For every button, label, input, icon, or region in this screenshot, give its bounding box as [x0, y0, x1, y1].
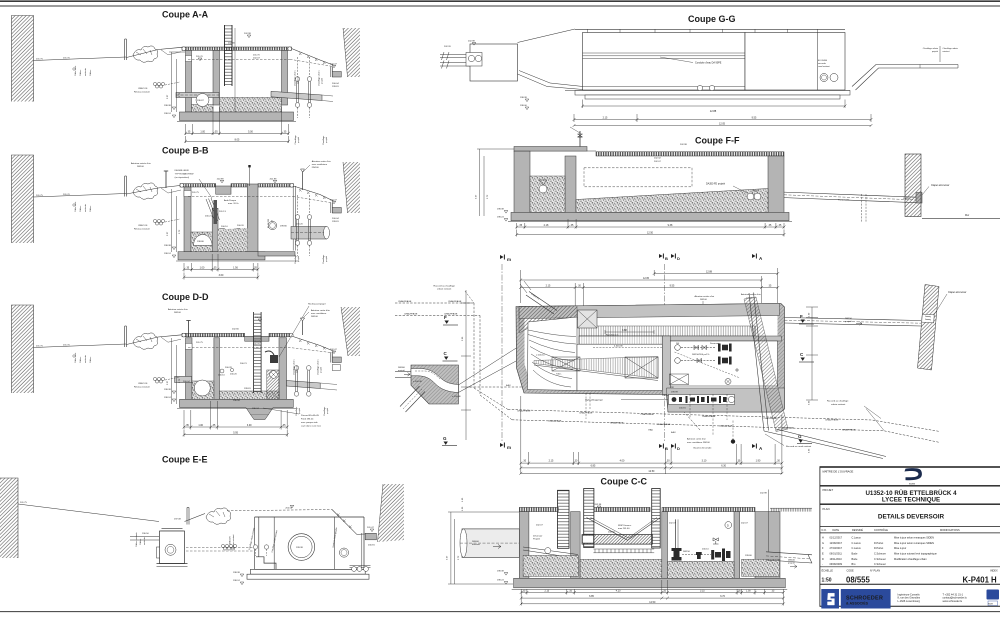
svg-text:201.75: 201.75	[36, 346, 43, 348]
svg-text:CHAUFFAGE: CHAUFFAGE	[448, 300, 462, 303]
svg-text:4.20: 4.20	[616, 589, 621, 592]
svg-text:C.Lanux: C.Lanux	[852, 542, 862, 545]
svg-text:CHAUFFAGE: CHAUFFAGE	[610, 421, 624, 424]
svg-text:CHAUFFAGE: CHAUFFAGE	[702, 415, 716, 418]
svg-text:Conduite d'eau DA 90PE: Conduite d'eau DA 90PE	[695, 62, 722, 65]
svg-text:199.99: 199.99	[671, 392, 678, 394]
svg-text:CRECOS: CRECOS	[138, 225, 148, 227]
svg-text:C.Lanux: C.Lanux	[852, 537, 862, 540]
svg-text:Deversoir: Deversoir	[710, 342, 720, 345]
svg-text:PROJET: PROJET	[823, 488, 834, 492]
svg-text:projeté: projeté	[788, 562, 795, 565]
svg-text:27/03/2017: 27/03/2017	[830, 547, 843, 550]
svg-text:2.18: 2.18	[544, 224, 549, 227]
svg-text:DN300 FD: DN300 FD	[530, 293, 539, 300]
svg-text:Chauffage urbain: Chauffage urbain	[319, 71, 321, 86]
svg-text:200.21: 200.21	[240, 363, 247, 365]
svg-text:Bro: Bro	[852, 563, 857, 566]
svg-text:Chauffage: Chauffage	[323, 254, 325, 264]
svg-text:Mise à jour selon remarques SI: Mise à jour selon remarques SIDEN	[894, 542, 934, 545]
svg-text:35: 35	[213, 424, 216, 427]
svg-text:D: D	[822, 558, 824, 561]
svg-text:35: 35	[254, 266, 257, 269]
svg-text:12.05: 12.05	[643, 277, 650, 280]
svg-text:Fond 196.24: Fond 196.24	[301, 419, 314, 421]
svg-text:CONTRÔLE: CONTRÔLE	[874, 529, 888, 532]
svg-text:197.08: 197.08	[174, 519, 181, 521]
svg-text:3.10: 3.10	[702, 460, 707, 463]
svg-text:12.50: 12.50	[647, 232, 654, 235]
svg-text:1.00: 1.00	[809, 312, 811, 317]
svg-text:projeté: projeté	[321, 77, 324, 84]
svg-text:35: 35	[283, 424, 286, 427]
svg-text:201.75: 201.75	[192, 192, 199, 194]
svg-text:Chauffage urbain: Chauffage urbain	[295, 71, 297, 86]
svg-text:existant: existant	[296, 366, 299, 373]
svg-text:1.00: 1.00	[198, 424, 203, 427]
svg-text:PLAN: PLAN	[823, 507, 830, 511]
svg-text:198.38: 198.38	[164, 105, 171, 107]
svg-text:DN150/200 p=1%: DN150/200 p=1%	[692, 354, 709, 356]
svg-text:200.10: 200.10	[218, 375, 225, 377]
svg-text:avec ventilateur: avec ventilateur	[312, 163, 328, 166]
svg-text:201.75: 201.75	[196, 342, 203, 344]
svg-text:202.98: 202.98	[680, 144, 687, 146]
svg-text:3.37: 3.37	[167, 94, 169, 99]
svg-text:H: H	[822, 537, 824, 540]
svg-text:existant: existant	[943, 50, 950, 53]
svg-text:Pente 1.0%: Pente 1.0%	[838, 198, 849, 201]
svg-text:35: 35	[769, 285, 772, 288]
svg-text:C.Lanux: C.Lanux	[852, 547, 862, 550]
svg-text:201.75: 201.75	[36, 59, 43, 61]
svg-text:ø 200.46: ø 200.46	[452, 396, 461, 398]
svg-text:200.10: 200.10	[221, 226, 228, 228]
svg-text:WSP Dimens.: WSP Dimens.	[618, 525, 632, 527]
svg-text:12.88: 12.88	[706, 271, 713, 274]
svg-text:Déversoir: Déversoir	[533, 535, 543, 538]
svg-text:Câbles: Câbles	[90, 206, 92, 212]
svg-text:projeté: projeté	[297, 255, 300, 262]
svg-text:F: F	[444, 315, 447, 320]
svg-text:Aération entrée d'air: Aération entrée d'air	[741, 293, 761, 296]
svg-text:CHAUFFAGE: CHAUFFAGE	[842, 428, 856, 431]
svg-text:202.98: 202.98	[595, 504, 602, 506]
svg-text:Raccord au canal existant: Raccord au canal existant	[786, 445, 812, 448]
svg-text:CHAUFFAGE: CHAUFFAGE	[825, 419, 839, 422]
svg-text:D: D	[677, 256, 680, 261]
svg-text:199.81: 199.81	[332, 221, 339, 223]
svg-text:-: -	[822, 563, 823, 566]
svg-text:198.06: 198.06	[520, 105, 527, 107]
svg-text:DN400: DN400	[472, 541, 480, 543]
svg-text:existants: existants	[84, 204, 87, 212]
svg-text:35: 35	[186, 424, 189, 427]
svg-text:200.10: 200.10	[702, 549, 709, 551]
svg-text:F: F	[800, 314, 803, 319]
svg-text:C.Scheuer: C.Scheuer	[874, 558, 886, 561]
svg-text:201.70: 201.70	[196, 56, 203, 58]
svg-text:198.38: 198.38	[164, 245, 171, 247]
svg-text:198.38: 198.38	[497, 571, 504, 573]
svg-text:G: G	[822, 542, 824, 545]
svg-text:Réseau existant: Réseau existant	[134, 386, 150, 389]
svg-text:200.20: 200.20	[237, 225, 244, 227]
svg-text:projeté: projeté	[298, 407, 301, 414]
svg-text:08/555: 08/555	[846, 576, 871, 585]
svg-text:06/01/2011: 06/01/2011	[830, 553, 843, 556]
svg-text:urbain existant: urbain existant	[437, 288, 452, 291]
svg-text:Coupe E-E: Coupe E-E	[162, 455, 208, 465]
svg-text:avec pompe vide: avec pompe vide	[301, 422, 318, 424]
svg-text:existant: existant	[297, 77, 300, 84]
svg-text:30: 30	[523, 460, 526, 463]
svg-text:201.47: 201.47	[367, 527, 374, 529]
svg-text:1.90: 1.90	[756, 460, 761, 463]
svg-text:3.00: 3.00	[462, 336, 464, 341]
svg-text:201.13: 201.13	[219, 211, 226, 213]
svg-text:max 201.60: max 201.60	[618, 528, 630, 530]
svg-text:201.70: 201.70	[63, 344, 70, 346]
svg-text:3.03: 3.03	[809, 400, 811, 405]
svg-text:198.24: 198.24	[164, 113, 171, 115]
svg-text:Modification chauffage urbain: Modification chauffage urbain	[894, 558, 927, 561]
svg-text:198.24: 198.24	[164, 253, 171, 255]
svg-text:200.81: 200.81	[368, 545, 375, 547]
svg-text:existants: existants	[143, 537, 146, 545]
svg-text:Amb.Pumpe: Amb.Pumpe	[224, 199, 237, 202]
svg-text:202.26: 202.26	[444, 46, 451, 48]
svg-text:Coupe B-B: Coupe B-B	[162, 146, 209, 156]
svg-text:5.03: 5.03	[809, 448, 811, 453]
svg-text:Raccord au chauffage: Raccord au chauffage	[434, 284, 456, 287]
svg-text:1.50: 1.50	[462, 506, 464, 511]
svg-text:Câble exist.: Câble exist.	[74, 352, 77, 363]
svg-text:Câbles existants: Câbles existants	[135, 532, 138, 547]
svg-text:DN300: DN300	[398, 367, 406, 369]
svg-text:202.07: 202.07	[253, 58, 260, 60]
svg-text:projeté: projeté	[297, 136, 300, 143]
svg-text:9.38: 9.38	[668, 224, 673, 227]
svg-text:201.75: 201.75	[36, 195, 43, 197]
svg-text:Clapet anti-retour: Clapet anti-retour	[948, 291, 967, 294]
svg-text:www.schroeder.lu: www.schroeder.lu	[943, 600, 963, 603]
svg-text:B: B	[665, 256, 668, 261]
svg-text:202.07: 202.07	[536, 525, 543, 527]
svg-text:CHAUFFAGE: CHAUFFAGE	[548, 420, 562, 423]
svg-text:SIDEN: SIDEN	[909, 484, 916, 486]
svg-text:Réseau existant: Réseau existant	[134, 91, 150, 94]
svg-text:35: 35	[519, 224, 522, 227]
svg-text:Hydraulikaggregat: Hydraulikaggregat	[585, 398, 603, 401]
svg-text:200.04: 200.04	[332, 218, 339, 220]
svg-text:urbain existant: urbain existant	[831, 403, 846, 406]
svg-text:canal existant: canal existant	[818, 65, 830, 68]
svg-text:Mise à jour suivant levé topog: Mise à jour suivant levé topographique	[894, 553, 937, 556]
svg-text:CHAUFFAGE: CHAUFFAGE	[657, 423, 671, 426]
svg-text:Aération sortie d'air: Aération sortie d'air	[312, 160, 331, 163]
svg-text:1.90: 1.90	[746, 589, 751, 592]
svg-text:6.85: 6.85	[591, 465, 596, 468]
svg-text:LYCEE TECHNIQUE: LYCEE TECHNIQUE	[882, 497, 940, 504]
svg-text:Coupe F-F: Coupe F-F	[695, 136, 740, 146]
svg-text:35: 35	[571, 224, 574, 227]
svg-text:200.20: 200.20	[296, 224, 303, 226]
svg-text:Câbles: Câbles	[80, 206, 82, 212]
svg-text:201.70: 201.70	[63, 194, 70, 196]
svg-text:DN100: DN100	[174, 312, 182, 314]
svg-text:projeté: projeté	[398, 369, 405, 372]
svg-text:202.98: 202.98	[255, 317, 262, 319]
svg-text:1.56: 1.56	[233, 266, 238, 269]
svg-text:9.55: 9.55	[752, 117, 757, 120]
svg-text:C.Scheuer: C.Scheuer	[874, 553, 886, 556]
svg-text:198.24: 198.24	[233, 580, 240, 582]
svg-text:TYP ROMAG RSW: TYP ROMAG RSW	[175, 173, 195, 176]
svg-text:30: 30	[578, 285, 581, 288]
svg-text:D: D	[727, 525, 729, 528]
svg-text:Chauffage: Chauffage	[324, 406, 326, 416]
svg-text:2.15: 2.15	[544, 589, 549, 592]
svg-text:E: E	[822, 553, 824, 556]
svg-text:CODE: CODE	[847, 569, 855, 572]
svg-text:Câbles: Câbles	[90, 357, 92, 363]
svg-text:12.88: 12.88	[710, 109, 717, 113]
svg-text:Tôles: Tôles	[556, 374, 562, 376]
svg-text:Chauffage: Chauffage	[323, 135, 325, 145]
svg-text:4.00: 4.00	[620, 460, 625, 463]
svg-text:3.60: 3.60	[219, 274, 224, 277]
svg-text:existants: existants	[84, 68, 87, 76]
svg-text:200.81: 200.81	[679, 408, 686, 410]
svg-text:Coupe D-D: Coupe D-D	[162, 292, 209, 302]
svg-text:202.98: 202.98	[468, 41, 475, 43]
svg-text:198.38: 198.38	[497, 209, 504, 211]
svg-text:Mur: Mur	[965, 214, 969, 217]
svg-text:EU CH300: EU CH300	[818, 60, 827, 62]
svg-text:3.00: 3.00	[247, 424, 252, 427]
svg-text:2.72: 2.72	[487, 194, 489, 199]
svg-text:196.50: 196.50	[142, 533, 149, 535]
svg-text:Câbles: Câbles	[140, 539, 142, 545]
svg-text:DN100: DN100	[312, 167, 320, 169]
svg-text:Chauffage urbain: Chauffage urbain	[923, 48, 938, 50]
svg-text:Aération sortie d'air: Aération sortie d'air	[687, 438, 706, 441]
svg-text:3.37: 3.37	[167, 380, 169, 385]
svg-text:196.24: 196.24	[252, 408, 259, 410]
svg-text:35: 35	[188, 130, 191, 133]
svg-text:200.60: 200.60	[608, 532, 615, 534]
svg-text:2.72: 2.72	[179, 229, 181, 234]
svg-text:m: m	[507, 445, 511, 450]
svg-text:2.15: 2.15	[549, 460, 554, 463]
svg-text:A: A	[759, 256, 763, 261]
svg-text:F: F	[822, 547, 824, 550]
svg-text:202.98: 202.98	[244, 33, 251, 35]
svg-text:& ASSOCIÉS: & ASSOCIÉS	[846, 601, 869, 606]
svg-text:max. 20 l/s: max. 20 l/s	[228, 203, 239, 205]
svg-text:existants: existants	[84, 355, 87, 363]
svg-text:30: 30	[575, 460, 578, 463]
svg-text:DN100: DN100	[311, 316, 319, 318]
svg-text:(ou équivalent): (ou équivalent)	[175, 176, 190, 179]
svg-text:202.07: 202.07	[741, 523, 748, 525]
svg-text:30: 30	[667, 460, 670, 463]
svg-text:199.80: 199.80	[745, 555, 752, 557]
svg-text:raccorder: raccorder	[818, 62, 826, 65]
svg-text:3.37: 3.37	[167, 231, 169, 236]
svg-text:201.70: 201.70	[253, 344, 260, 346]
svg-text:K-P401: K-P401	[963, 576, 990, 585]
svg-text:Clapet anti-retour: Clapet anti-retour	[931, 184, 950, 187]
svg-text:1.05: 1.05	[462, 497, 464, 502]
svg-text:INDR: INDR	[988, 604, 993, 606]
svg-text:202.66: 202.66	[232, 329, 239, 331]
svg-text:projeté: projeté	[845, 320, 852, 323]
svg-text:avec ventilateur DN100: avec ventilateur DN100	[687, 441, 711, 444]
svg-text:projeté: projeté	[325, 255, 328, 262]
svg-text:6.30: 6.30	[721, 465, 726, 468]
svg-text:Rail 200.5 m: Rail 200.5 m	[606, 334, 618, 336]
svg-text:198.38: 198.38	[164, 389, 171, 391]
svg-text:09/06/2009: 09/06/2009	[830, 563, 843, 566]
svg-text:CRECOS: CRECOS	[138, 383, 148, 385]
svg-text:Chauffage urbain: Chauffage urbain	[318, 360, 320, 375]
svg-text:9.55: 9.55	[670, 285, 675, 288]
svg-text:D.Portet: D.Portet	[874, 542, 883, 545]
svg-text:196.58: 196.58	[233, 400, 240, 402]
svg-text:3.37: 3.37	[447, 555, 449, 560]
svg-text:CHAUFFAGE: CHAUFFAGE	[719, 425, 733, 428]
svg-text:H: H	[991, 576, 997, 585]
svg-text:201.70: 201.70	[253, 55, 260, 57]
svg-text:Câbles: Câbles	[90, 70, 92, 76]
svg-text:cave dans cuve inox: cave dans cuve inox	[301, 426, 322, 428]
svg-text:203.04: 203.04	[662, 395, 669, 397]
svg-text:199.80: 199.80	[280, 226, 287, 228]
svg-text:Conduite d'eau potable: Conduite d'eau potable	[332, 526, 339, 548]
svg-text:DN100: DN100	[788, 560, 796, 562]
svg-text:L-1626 Luxembourg: L-1626 Luxembourg	[898, 600, 921, 603]
svg-text:198.24: 198.24	[497, 580, 504, 582]
svg-text:Raccord au chauffage: Raccord au chauffage	[827, 400, 849, 403]
svg-text:Puisard 65×65×65: Puisard 65×65×65	[301, 414, 320, 417]
svg-text:2.15: 2.15	[546, 285, 551, 288]
svg-text:198.24: 198.24	[164, 397, 171, 399]
svg-text:1:50: 1:50	[822, 578, 832, 584]
svg-text:Réseau existant: Réseau existant	[134, 228, 150, 231]
svg-text:6.70: 6.70	[720, 595, 725, 598]
svg-text:Aération entrée d'air: Aération entrée d'air	[695, 295, 715, 298]
svg-text:Coupe A-A: Coupe A-A	[162, 10, 209, 20]
svg-text:Chauffage urbain: Chauffage urbain	[943, 48, 958, 50]
svg-text:Bode: Bode	[852, 558, 858, 561]
svg-text:35: 35	[779, 224, 782, 227]
svg-text:ø 200.10: ø 200.10	[536, 355, 545, 357]
svg-text:6.85: 6.85	[589, 595, 594, 598]
svg-text:CHAUFFAGE: CHAUFFAGE	[398, 300, 412, 303]
svg-text:35: 35	[186, 266, 189, 269]
svg-text:198.60: 198.60	[752, 191, 759, 193]
svg-text:projeté: projeté	[325, 136, 328, 143]
svg-text:1.00: 1.00	[200, 266, 205, 269]
svg-text:projeté: projeté	[932, 50, 939, 53]
svg-text:DEGRILLEUR: DEGRILLEUR	[175, 170, 189, 172]
svg-text:SCHROEDER: SCHROEDER	[846, 595, 883, 601]
svg-text:EAU: EAU	[506, 384, 511, 387]
svg-text:DN: DN	[676, 343, 680, 345]
svg-text:EAU: EAU	[649, 429, 654, 432]
svg-text:D: D	[677, 446, 680, 451]
svg-text:MODIFICATIONS: MODIFICATIONS	[940, 529, 960, 532]
svg-text:202.07: 202.07	[654, 161, 661, 163]
svg-text:C: C	[800, 352, 804, 357]
svg-text:Existant: Existant	[472, 543, 480, 546]
svg-text:DA350 FD projeté: DA350 FD projeté	[706, 183, 726, 186]
svg-text:Chauffage: Chauffage	[295, 254, 297, 264]
svg-text:19/11/2010: 19/11/2010	[830, 558, 843, 561]
svg-text:CHAUFFAGE: CHAUFFAGE	[517, 410, 531, 413]
svg-text:DETAILS DEVERSOIR: DETAILS DEVERSOIR	[878, 514, 945, 521]
svg-text:Projeté: Projeté	[533, 538, 541, 541]
svg-text:Câbles: Câbles	[80, 357, 82, 363]
svg-text:projeté: projeté	[326, 407, 329, 414]
svg-text:Mise à jour selon remarques SI: Mise à jour selon remarques SIDEN	[894, 537, 934, 540]
svg-text:Chauffage: Chauffage	[295, 134, 297, 144]
svg-text:202.66: 202.66	[228, 43, 235, 45]
svg-text:Câble exist.: Câble exist.	[74, 65, 77, 76]
svg-text:Chauffage urbain existant: Chauffage urbain existant	[271, 530, 279, 553]
svg-text:12.50: 12.50	[649, 601, 656, 604]
svg-text:N° PLAN: N° PLAN	[870, 569, 880, 572]
svg-text:ø 300.48: ø 300.48	[413, 381, 422, 383]
svg-text:Mise à jour: Mise à jour	[894, 547, 906, 550]
svg-text:1.00: 1.00	[200, 130, 205, 133]
svg-text:30: 30	[738, 460, 741, 463]
svg-text:200.21: 200.21	[205, 216, 212, 218]
svg-text:Aération entrée d'air: Aération entrée d'air	[168, 308, 188, 311]
svg-text:C.Scheuer: C.Scheuer	[874, 563, 886, 566]
svg-text:201.75: 201.75	[20, 502, 27, 504]
svg-text:Hochwasserpegel: Hochwasserpegel	[308, 303, 326, 306]
svg-text:198.38: 198.38	[233, 572, 240, 574]
svg-text:DN150: DN150	[845, 318, 853, 320]
svg-text:196.87: 196.87	[197, 100, 204, 102]
svg-text:avec ventilateur: avec ventilateur	[311, 312, 327, 315]
svg-text:202.98: 202.98	[760, 493, 767, 495]
svg-text:202.07: 202.07	[253, 341, 260, 343]
svg-text:G: G	[443, 436, 447, 441]
svg-text:12.05: 12.05	[719, 123, 726, 126]
svg-text:35: 35	[284, 130, 287, 133]
svg-text:01/12/2017: 01/12/2017	[830, 537, 843, 540]
svg-text:35: 35	[215, 130, 218, 133]
svg-text:199.81: 199.81	[332, 86, 339, 88]
svg-text:Bode: Bode	[852, 553, 858, 556]
svg-text:DATE: DATE	[833, 529, 840, 532]
svg-text:CHAUFFAGE: CHAUFFAGE	[404, 313, 418, 316]
svg-text:2.72: 2.72	[458, 555, 460, 560]
svg-text:INDEX: INDEX	[990, 569, 998, 572]
svg-text:35: 35	[214, 266, 217, 269]
svg-text:202.32: 202.32	[654, 158, 661, 160]
svg-text:projeté: projeté	[320, 366, 323, 373]
svg-text:3.15: 3.15	[700, 589, 705, 592]
svg-text:CRECOS: CRECOS	[230, 536, 232, 545]
svg-text:EAU: EAU	[671, 431, 676, 434]
svg-text:200.04: 200.04	[332, 83, 339, 85]
svg-text:MAÎTRE DE L'OUVRAGE: MAÎTRE DE L'OUVRAGE	[823, 470, 854, 474]
